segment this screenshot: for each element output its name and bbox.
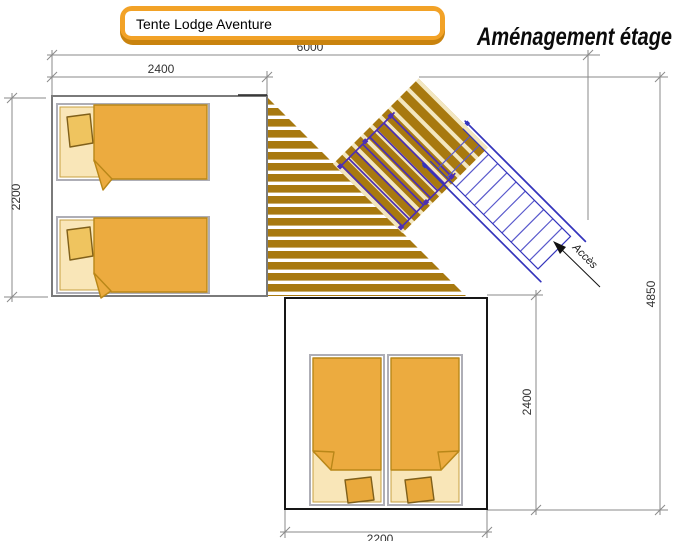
bed-blanket xyxy=(94,218,207,292)
dimension-left-room-depth-value: 2200 xyxy=(9,183,23,210)
dimension-bottom-room-depth-value: 2400 xyxy=(520,388,534,415)
bottom-room xyxy=(285,298,487,509)
pillow xyxy=(345,477,374,503)
left-room xyxy=(52,95,267,298)
floor-plan-page: 6000 2400 2200 4850 xyxy=(0,0,680,541)
access-callout: Accès xyxy=(553,241,600,287)
pillow xyxy=(67,114,93,147)
pillow xyxy=(405,477,434,503)
pillow xyxy=(67,227,93,260)
dimension-left-room-width: 2400 xyxy=(47,62,273,96)
dimension-bottom-room-width: 2200 xyxy=(280,510,492,541)
dimension-left-room-width-value: 2400 xyxy=(148,62,175,76)
bottom-room-bed-1 xyxy=(310,355,384,505)
dimension-bottom-room-width-value: 2200 xyxy=(367,532,394,541)
floor-plan: 6000 2400 2200 4850 xyxy=(0,0,680,541)
left-room-bed-1 xyxy=(57,104,209,190)
dimension-left-room-depth: 2200 xyxy=(4,93,48,302)
title-box: Tente Lodge Aventure xyxy=(120,6,445,45)
dimension-overall-depth-value: 4850 xyxy=(644,280,658,307)
left-room-bed-2 xyxy=(57,217,209,298)
dimension-bottom-room-depth: 2400 xyxy=(487,290,543,515)
access-label: Accès xyxy=(569,241,600,272)
bottom-room-bed-2 xyxy=(388,355,462,505)
plan-heading: Aménagement étage xyxy=(476,23,672,51)
title-box-label: Tente Lodge Aventure xyxy=(136,16,272,32)
bed-blanket xyxy=(94,105,207,179)
